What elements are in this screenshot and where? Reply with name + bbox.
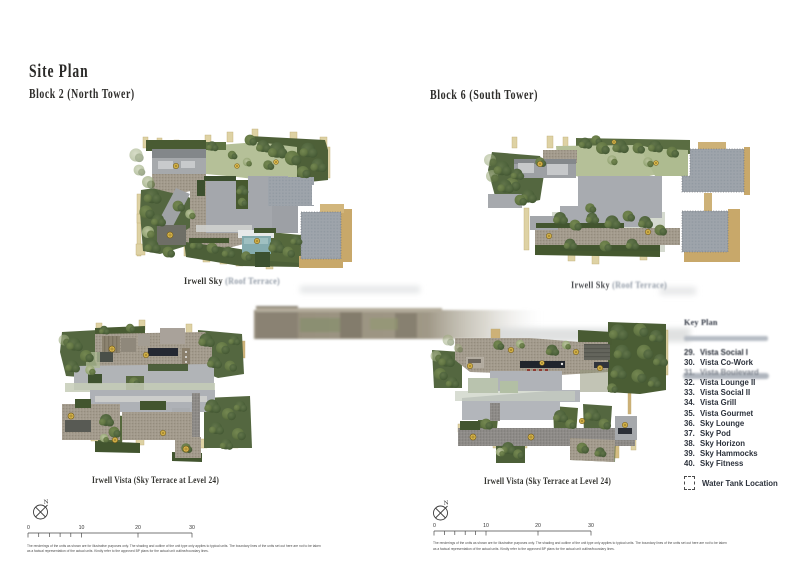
svg-text:20: 20 — [135, 525, 141, 531]
svg-text:10: 10 — [79, 525, 85, 531]
svg-text:0: 0 — [433, 523, 436, 529]
svg-text:30: 30 — [588, 523, 594, 529]
svg-text:N: N — [443, 499, 449, 507]
svg-text:N: N — [43, 498, 49, 506]
svg-text:30: 30 — [189, 525, 195, 531]
svg-text:20: 20 — [535, 523, 541, 529]
svg-text:10: 10 — [483, 523, 489, 529]
svg-text:0: 0 — [27, 525, 30, 531]
